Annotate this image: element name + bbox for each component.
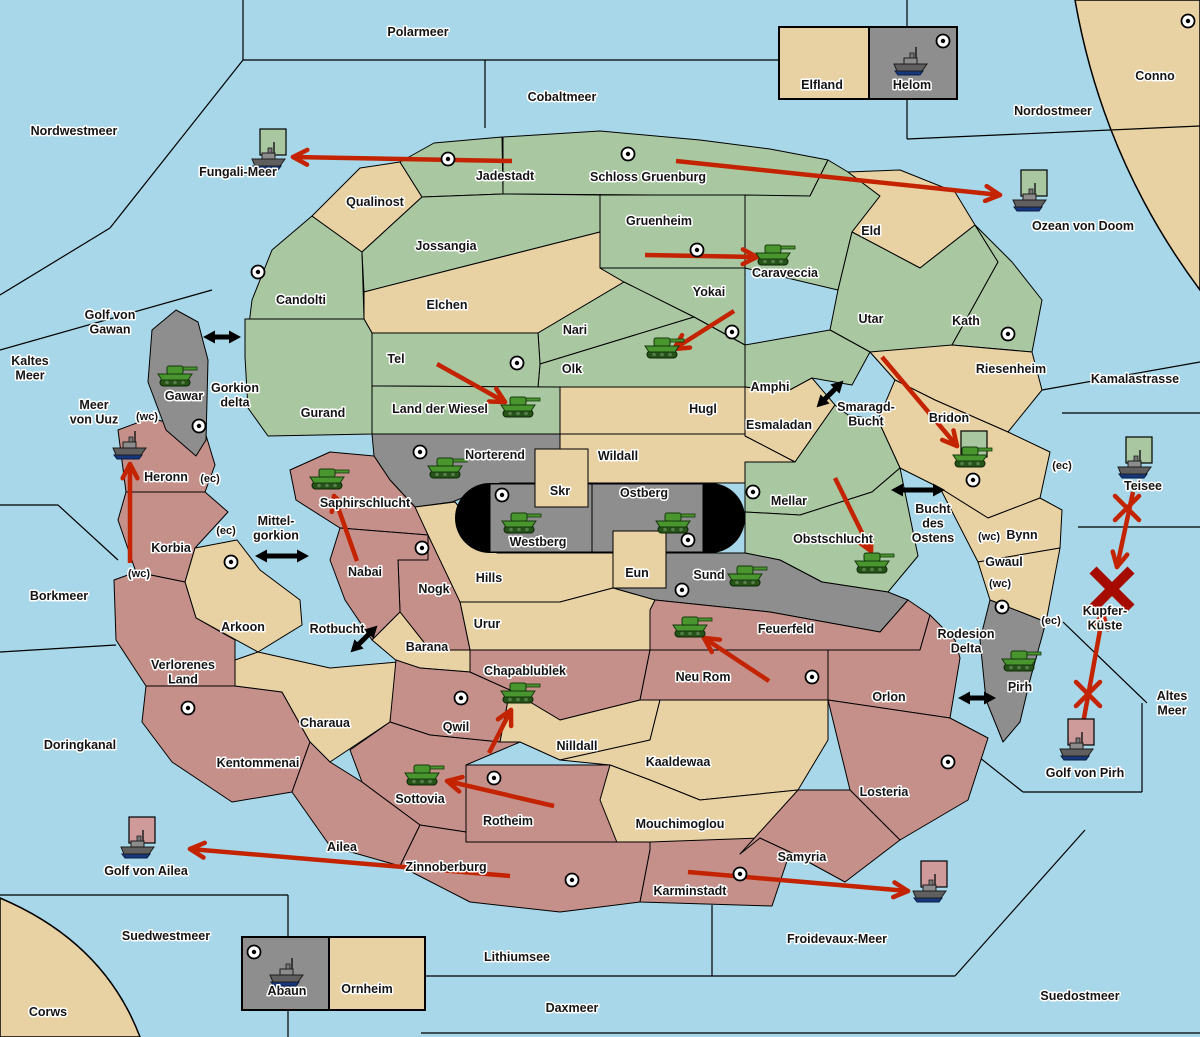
region-label-hugl: Hugl — [689, 402, 717, 416]
region-label-nogk: Nogk — [418, 582, 449, 596]
region-label-bynn: Bynn — [1006, 528, 1037, 542]
supply-center-icon-jadestadt — [442, 153, 455, 166]
supply-center-icon-gruenheim — [691, 244, 704, 257]
sea-label-fungali-meer: Fungali-Meer — [199, 165, 277, 179]
nation-flag — [129, 817, 155, 843]
region-label-helom: Helom — [893, 78, 931, 92]
supply-center-icon-arkoon — [225, 556, 238, 569]
region-label-wildall: Wildall — [598, 449, 638, 463]
sea-label-daxmeer: Daxmeer — [546, 1001, 599, 1015]
sea-label-altes-meer: AltesMeer — [1157, 689, 1188, 718]
region-label-riesenheim: Riesenheim — [976, 362, 1046, 376]
sea-label-lithiumsee: Lithiumsee — [484, 950, 550, 964]
region-label-gurand: Gurand — [301, 406, 345, 420]
region-label-gruenheim: Gruenheim — [626, 214, 692, 228]
supply-center-icon-conno — [1182, 15, 1195, 28]
supply-center-icon-abaun — [248, 946, 261, 959]
region-label-ornheim: Ornheim — [341, 982, 392, 996]
region-label-tel: Tel — [387, 352, 404, 366]
supply-center-icon-karminstadt — [734, 868, 747, 881]
region-label-kath: Kath — [952, 314, 980, 328]
supply-center-icon-helom — [937, 35, 950, 48]
region-label-qwil: Qwil — [443, 720, 469, 734]
region-label-urur: Urur — [474, 617, 501, 631]
region-label-skr: Skr — [550, 484, 570, 498]
region-skr[interactable] — [535, 449, 588, 507]
nation-flag — [260, 129, 286, 155]
region-label-nilldall: Nilldall — [557, 739, 598, 753]
region-label-sottovia: Sottovia — [395, 792, 445, 806]
sea-label-corws: Corws — [29, 1005, 67, 1019]
coast-label: (wc) — [136, 411, 158, 423]
sea-label-polarmeer: Polarmeer — [387, 25, 448, 39]
supply-center-icon-qwil — [455, 692, 468, 705]
coast-label: (ec) — [1041, 615, 1061, 627]
region-label-gawar: Gawar — [165, 389, 203, 403]
coast-label: (wc) — [128, 568, 150, 580]
sea-label-kupfer-k-ste: Kupfer-Küste — [1083, 604, 1127, 633]
region-label-abaun: Abaun — [268, 984, 307, 998]
region-label-feuerfeld: Feuerfeld — [758, 622, 814, 636]
region-label-barana: Barana — [406, 640, 449, 654]
region-label-hills: Hills — [476, 571, 502, 585]
region-label-saphirschlucht: Saphirschlucht — [320, 496, 411, 510]
supply-center-icon-kentommenai — [182, 702, 195, 715]
sea-label-cobaltmeer: Cobaltmeer — [528, 90, 597, 104]
region-label-norterend: Norterend — [465, 448, 525, 462]
region-label-elchen: Elchen — [427, 298, 468, 312]
region-label-chapablublek: Chapablublek — [484, 664, 566, 678]
supply-center-icon-sund — [676, 584, 689, 597]
region-label-schloss-gruenburg: Schloss Gruenburg — [590, 170, 706, 184]
sea-label-rotbucht: Rotbucht — [310, 622, 366, 636]
sea-label-golf-von-gawan: Golf vonGawan — [85, 308, 136, 337]
region-label-kaaldewaa: Kaaldewaa — [646, 755, 712, 769]
sea-label-kaltes-meer: KaltesMeer — [11, 354, 49, 383]
supply-center-icon-neu-rom — [806, 671, 819, 684]
region-label-amphi: Amphi — [751, 380, 790, 394]
region-label-qualinost: Qualinost — [346, 195, 404, 209]
nation-flag — [921, 861, 947, 887]
coast-label: (wc) — [989, 578, 1011, 590]
sea-label-teisee: Teisee — [1124, 479, 1162, 493]
region-label-zinnoberburg: Zinnoberburg — [405, 860, 486, 874]
region-label-obstschlucht: Obstschlucht — [793, 532, 874, 546]
region-label-yokai: Yokai — [693, 285, 725, 299]
coast-label: (wc) — [978, 531, 1000, 543]
region-label-elfland: Elfland — [801, 78, 843, 92]
region-label-land-der-wiesel: Land der Wiesel — [392, 402, 488, 416]
region-label-ailea: Ailea — [327, 840, 358, 854]
nation-flag — [1068, 719, 1094, 745]
supply-center-icon-rotheim — [488, 772, 501, 785]
region-label-neu-rom: Neu Rom — [676, 670, 731, 684]
region-label-losteria: Losteria — [860, 785, 910, 799]
region-label-sund: Sund — [693, 568, 724, 582]
region-label-westberg: Westberg — [510, 535, 567, 549]
sea-label-mittel-gorkion: Mittel-gorkion — [253, 514, 299, 543]
region-ornheim[interactable] — [329, 937, 425, 1010]
region-label-heronn: Heronn — [144, 470, 188, 484]
coast-label: (ec) — [216, 525, 236, 537]
supply-center-icon-tel — [511, 357, 524, 370]
region-label-rotheim: Rotheim — [483, 814, 533, 828]
region-label-mellar: Mellar — [771, 494, 807, 508]
supply-center-icon-yokai — [726, 326, 739, 339]
region-label-nabai: Nabai — [348, 565, 382, 579]
coast-label: (ec) — [200, 473, 220, 485]
sea-label-conno: Conno — [1135, 69, 1175, 83]
supply-center-icon-candolti — [252, 266, 265, 279]
supply-center-icon-losteria — [942, 756, 955, 769]
sea-label-doringkanal: Doringkanal — [44, 738, 116, 752]
map-svg: PolarmeerCobaltmeerNordostmeerConnoNordw… — [0, 0, 1200, 1037]
region-label-candolti: Candolti — [276, 293, 326, 307]
region-label-nari: Nari — [563, 323, 587, 337]
region-label-ostberg: Ostberg — [620, 486, 668, 500]
supply-center-icon-westberg — [496, 489, 509, 502]
region-label-bridon: Bridon — [929, 411, 969, 425]
supply-center-icon-zinnoberburg — [566, 874, 579, 887]
supply-center-icon-mellar — [747, 486, 760, 499]
region-label-jossangia: Jossangia — [415, 239, 477, 253]
sea-label-borkmeer: Borkmeer — [30, 589, 88, 603]
sea-label-froidevaux-meer: Froidevaux-Meer — [787, 932, 887, 946]
region-label-charaua: Charaua — [300, 716, 351, 730]
supply-center-icon-bridon — [967, 474, 980, 487]
supply-center-icon-norterend — [414, 446, 427, 459]
region-label-jadestadt: Jadestadt — [476, 169, 535, 183]
game-map: PolarmeerCobaltmeerNordostmeerConnoNordw… — [0, 0, 1200, 1037]
sea-label-ozean-von-doom: Ozean von Doom — [1032, 219, 1134, 233]
region-label-pirh: Pirh — [1008, 680, 1032, 694]
region-label-eld: Eld — [861, 224, 880, 238]
sea-label-kamalastrasse: Kamalastrasse — [1091, 372, 1179, 386]
region-label-karminstadt: Karminstadt — [654, 884, 728, 898]
region-label-korbia: Korbia — [151, 541, 192, 555]
supply-center-icon-schloss-gruenburg — [622, 148, 635, 161]
supply-center-icon-kath — [1002, 328, 1015, 341]
region-label-eun: Eun — [625, 566, 649, 580]
coast-label: (ec) — [1052, 460, 1072, 472]
region-label-esmaladan: Esmaladan — [746, 418, 812, 432]
region-label-gwaul: Gwaul — [985, 555, 1023, 569]
region-label-samyria: Samyria — [778, 850, 828, 864]
sea-label-nordwestmeer: Nordwestmeer — [31, 124, 118, 138]
region-label-olk: Olk — [562, 362, 582, 376]
sea-label-suedwestmeer: Suedwestmeer — [122, 929, 210, 943]
supply-center-icon-pirh — [996, 601, 1009, 614]
region-label-caraveccia: Caraveccia — [752, 266, 819, 280]
supply-center-icon-ostberg — [682, 534, 695, 547]
region-label-arkoon: Arkoon — [221, 620, 265, 634]
supply-center-icon-gawar — [193, 420, 206, 433]
region-label-utar: Utar — [858, 312, 883, 326]
region-label-kentommenai: Kentommenai — [217, 756, 300, 770]
supply-center-icon-nabai — [416, 542, 429, 555]
sea-label-golf-von-pirh: Golf von Pirh — [1046, 766, 1124, 780]
nation-flag — [1021, 170, 1047, 196]
sea-label-golf-von-ailea: Golf von Ailea — [104, 864, 189, 878]
region-hugl[interactable] — [560, 387, 745, 434]
sea-label-suedostmeer: Suedostmeer — [1040, 989, 1119, 1003]
nation-flag — [1126, 437, 1152, 463]
region-label-mouchimoglou: Mouchimoglou — [636, 817, 725, 831]
sea-label-nordostmeer: Nordostmeer — [1014, 104, 1092, 118]
region-label-orlon: Orlon — [872, 690, 905, 704]
